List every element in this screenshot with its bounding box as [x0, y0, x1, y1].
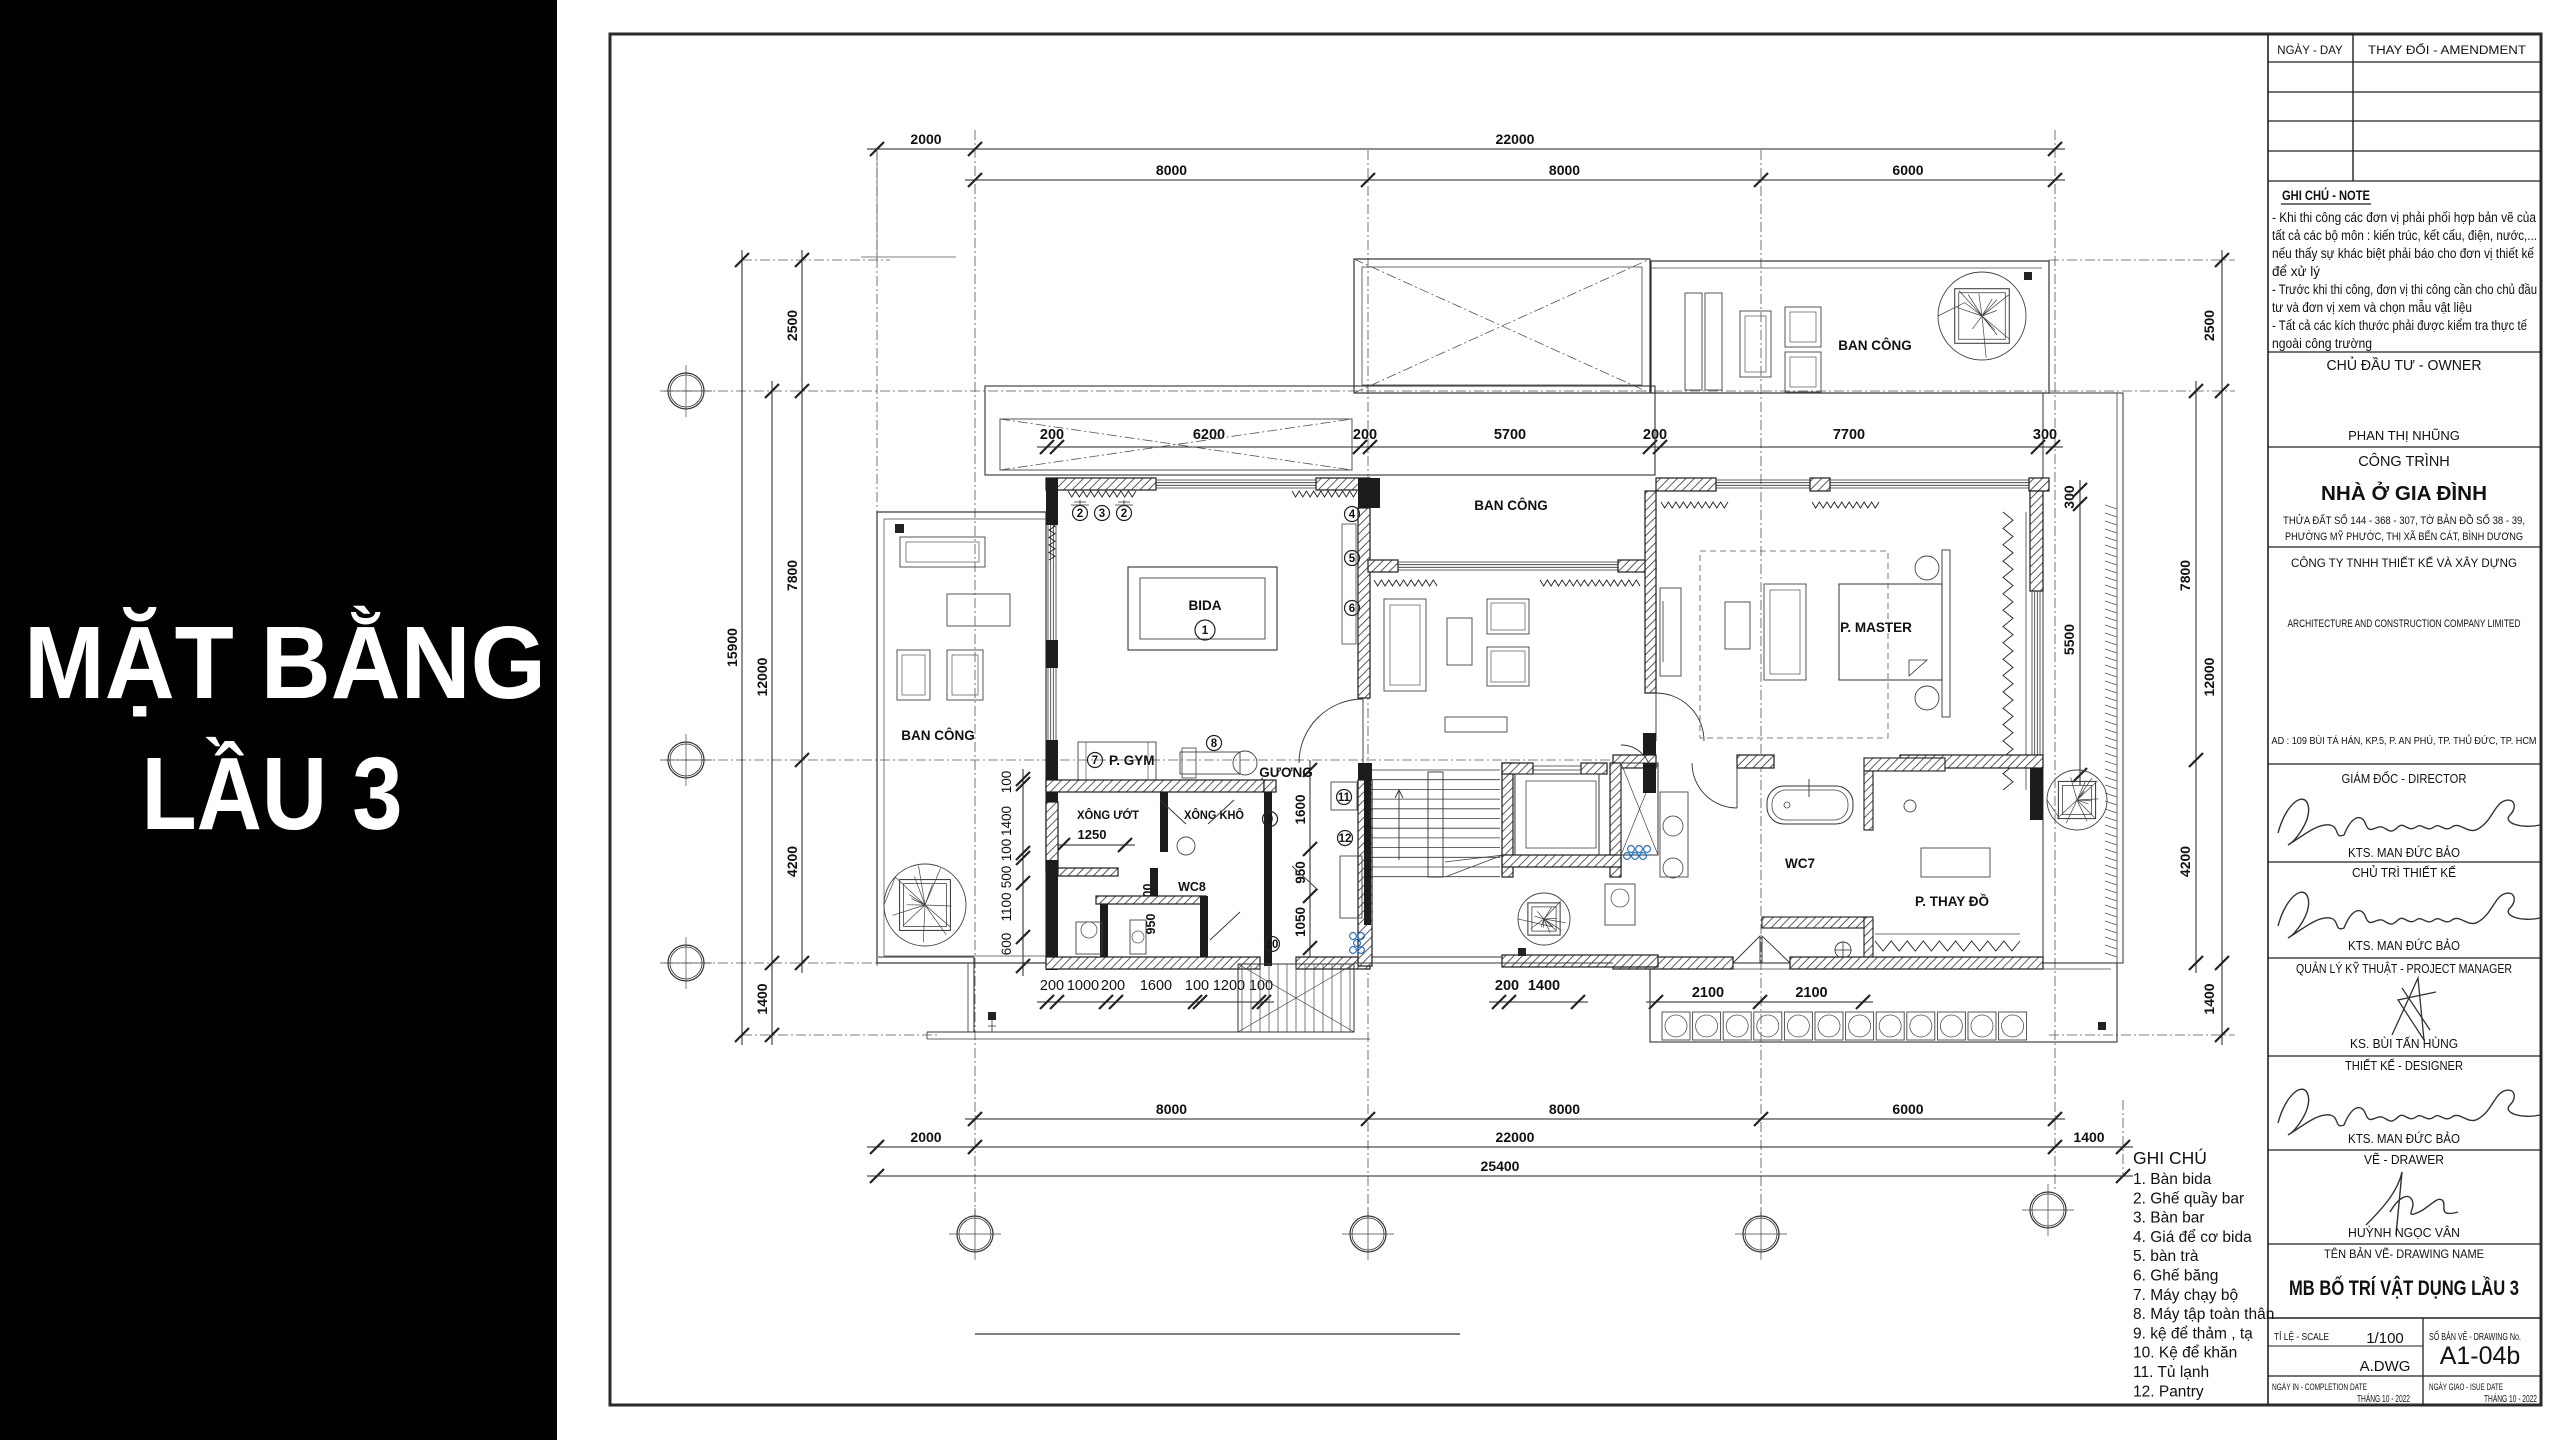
svg-text:BAN CÔNG: BAN CÔNG [1838, 338, 1912, 353]
svg-text:1/100: 1/100 [2366, 1330, 2404, 1347]
svg-text:8000: 8000 [1156, 1101, 1187, 1117]
svg-text:6: 6 [1349, 603, 1355, 615]
svg-text:15900: 15900 [724, 628, 740, 667]
svg-text:6. Ghế băng: 6. Ghế băng [2133, 1268, 2218, 1285]
svg-text:ngoài công trường: ngoài công trường [2272, 336, 2372, 351]
svg-text:100: 100 [1249, 978, 1273, 994]
svg-text:22000: 22000 [1496, 131, 1535, 147]
svg-text:VẼ - DRAWER: VẼ - DRAWER [2364, 1152, 2444, 1167]
svg-text:11. Tủ lạnh: 11. Tủ lạnh [2133, 1364, 2209, 1381]
svg-text:8000: 8000 [1549, 1101, 1580, 1117]
svg-text:5: 5 [1349, 553, 1356, 565]
svg-text:200: 200 [1040, 978, 1064, 994]
svg-text:WC8: WC8 [1178, 880, 1206, 894]
svg-text:7800: 7800 [2177, 560, 2193, 591]
svg-text:để xử lý: để xử lý [2272, 264, 2320, 279]
svg-text:A.DWG: A.DWG [2360, 1358, 2411, 1375]
svg-text:KTS. MAN ĐỨC BẢO: KTS. MAN ĐỨC BẢO [2348, 845, 2460, 860]
svg-text:8: 8 [1211, 738, 1218, 750]
svg-text:BIDA: BIDA [1189, 598, 1222, 613]
svg-text:100: 100 [1185, 978, 1209, 994]
svg-text:2500: 2500 [2201, 310, 2217, 341]
svg-text:1250: 1250 [1078, 827, 1107, 842]
svg-text:CÔNG TRÌNH: CÔNG TRÌNH [2358, 453, 2450, 470]
svg-text:200: 200 [1040, 427, 1064, 443]
svg-text:P. MASTER: P. MASTER [1840, 620, 1912, 635]
svg-text:P. GYM: P. GYM [1109, 753, 1155, 768]
svg-text:KTS. MAN ĐỨC BẢO: KTS. MAN ĐỨC BẢO [2348, 1131, 2460, 1146]
svg-text:8. Máy tập toàn thân: 8. Máy tập toàn thân [2133, 1306, 2274, 1323]
svg-text:2: 2 [1077, 508, 1083, 520]
svg-text:200: 200 [1101, 978, 1125, 994]
svg-text:MB BỐ TRÍ VẬT DỤNG LẦU 3: MB BỐ TRÍ VẬT DỤNG LẦU 3 [2289, 1276, 2519, 1300]
svg-text:NGÀY GIAO - ISUE DATE: NGÀY GIAO - ISUE DATE [2429, 1382, 2503, 1393]
svg-text:8000: 8000 [1549, 162, 1580, 178]
svg-text:GHI CHÚ - NOTE: GHI CHÚ - NOTE [2282, 186, 2370, 203]
svg-text:1400: 1400 [1528, 978, 1560, 994]
svg-text:PHƯỜNG MỸ PHƯỚC, THỊ XÃ BẾN CÁ: PHƯỜNG MỸ PHƯỚC, THỊ XÃ BẾN CÁT, BÌNH DƯ… [2285, 530, 2523, 543]
svg-text:300: 300 [2033, 427, 2057, 443]
svg-text:1400: 1400 [2201, 983, 2217, 1014]
svg-text:2000: 2000 [910, 1129, 941, 1145]
svg-text:9. kệ để thảm , tạ: 9. kệ để thảm , tạ [2133, 1325, 2253, 1342]
svg-text:AD : 109 BÙI TÁ HÁN, KP.5, P.: AD : 109 BÙI TÁ HÁN, KP.5, P. AN PHÚ, TP… [2272, 734, 2537, 747]
svg-text:KTS. MAN ĐỨC BẢO: KTS. MAN ĐỨC BẢO [2348, 938, 2460, 953]
svg-text:HUỲNH NGỌC VÂN: HUỲNH NGỌC VÂN [2348, 1225, 2460, 1240]
svg-text:4: 4 [1349, 509, 1356, 521]
svg-text:2. Ghế quầy bar: 2. Ghế quầy bar [2133, 1190, 2244, 1207]
svg-text:NGÀY IN - COMPLETION DATE: NGÀY IN - COMPLETION DATE [2272, 1382, 2367, 1393]
svg-text:4200: 4200 [2177, 846, 2193, 877]
svg-text:CÔNG TY TNHH THIẾT KẾ VÀ XÂY D: CÔNG TY TNHH THIẾT KẾ VÀ XÂY DỰNG [2291, 555, 2517, 570]
svg-text:QUẢN LÝ KỸ THUẬT - PROJECT MAN: QUẢN LÝ KỸ THUẬT - PROJECT MANAGER [2296, 961, 2512, 976]
svg-text:THÁNG 10 - 2022: THÁNG 10 - 2022 [2484, 1392, 2537, 1405]
svg-text:5700: 5700 [1494, 427, 1526, 443]
svg-text:PHAN THỊ NHŨNG: PHAN THỊ NHŨNG [2348, 428, 2460, 443]
svg-text:GHI CHÚ: GHI CHÚ [2133, 1147, 2207, 1168]
svg-text:1000: 1000 [1067, 978, 1099, 994]
svg-text:950: 950 [1293, 861, 1308, 884]
svg-text:2500: 2500 [784, 310, 800, 341]
svg-text:7700: 7700 [1833, 427, 1865, 443]
svg-text:1050: 1050 [1293, 907, 1308, 937]
svg-text:22000: 22000 [1496, 1129, 1535, 1145]
svg-text:- Khi thi công các đơn vị phải: - Khi thi công các đơn vị phải phối hợp … [2272, 210, 2536, 225]
svg-text:9: 9 [1267, 814, 1273, 826]
svg-text:2100: 2100 [1692, 985, 1724, 1001]
svg-text:200: 200 [1353, 427, 1377, 443]
svg-text:2: 2 [1121, 508, 1127, 520]
svg-text:6000: 6000 [1892, 1101, 1923, 1117]
svg-text:300: 300 [2061, 485, 2077, 509]
svg-text:6200: 6200 [1193, 427, 1225, 443]
svg-text:11: 11 [1338, 792, 1351, 804]
svg-text:100: 100 [999, 771, 1014, 794]
svg-text:7800: 7800 [784, 560, 800, 591]
svg-text:1400: 1400 [999, 806, 1014, 836]
svg-text:12000: 12000 [2201, 657, 2217, 696]
svg-text:7: 7 [1092, 755, 1098, 767]
svg-text:10: 10 [1266, 939, 1279, 951]
svg-text:1400: 1400 [2073, 1129, 2104, 1145]
svg-text:tư và đơn vị xem và chọn mẫu v: tư và đơn vị xem và chọn mẫu vật liệu [2272, 300, 2472, 315]
svg-text:10. Kệ để khăn: 10. Kệ để khăn [2133, 1345, 2237, 1362]
svg-text:1400: 1400 [754, 983, 770, 1014]
svg-text:600: 600 [999, 933, 1014, 956]
svg-text:1: 1 [1202, 625, 1209, 637]
svg-text:1200: 1200 [1213, 978, 1245, 994]
svg-text:2100: 2100 [1795, 985, 1827, 1001]
svg-text:CHỦ ĐẦU TƯ - OWNER: CHỦ ĐẦU TƯ - OWNER [2327, 356, 2482, 374]
svg-text:SỐ BẢN VẼ - DRAWING No.: SỐ BẢN VẼ - DRAWING No. [2429, 1329, 2521, 1343]
svg-text:4. Giá để cơ bida: 4. Giá để cơ bida [2133, 1229, 2252, 1246]
svg-text:3: 3 [1099, 508, 1105, 520]
svg-text:ARCHITECTURE AND CONSTRUCTION: ARCHITECTURE AND CONSTRUCTION COMPANY LI… [2288, 618, 2521, 630]
svg-text:GƯƠNG: GƯƠNG [1259, 765, 1312, 780]
svg-text:NGÀY - DAY: NGÀY - DAY [2277, 44, 2343, 57]
svg-text:GIÁM ĐỐC - DIRECTOR: GIÁM ĐỐC - DIRECTOR [2342, 771, 2467, 786]
svg-text:12. Pantry: 12. Pantry [2133, 1383, 2204, 1400]
svg-text:nếu thấy sự khác biệt phải bá: nếu thấy sự khác biệt phải báo cho đơn v… [2272, 246, 2534, 261]
svg-text:CHỦ TRÌ THIẾT KẾ: CHỦ TRÌ THIẾT KẾ [2352, 865, 2456, 880]
svg-text:tất cả các bộ môn : kiến trúc,: tất cả các bộ môn : kiến trúc, kết cấu, … [2272, 228, 2537, 243]
svg-text:THAY ĐỔI - AMENDMENT: THAY ĐỔI - AMENDMENT [2368, 44, 2526, 57]
svg-text:4200: 4200 [784, 846, 800, 877]
svg-text:25400: 25400 [1481, 1158, 1520, 1174]
svg-text:1600: 1600 [1140, 978, 1172, 994]
svg-text:NHÀ Ở GIA ĐÌNH: NHÀ Ở GIA ĐÌNH [2321, 481, 2487, 505]
svg-text:12000: 12000 [754, 657, 770, 696]
svg-text:3. Bàn bar: 3. Bàn bar [2133, 1210, 2205, 1227]
svg-text:LẦU 3: LẦU 3 [142, 736, 403, 851]
svg-text:6000: 6000 [1892, 162, 1923, 178]
svg-text:1100: 1100 [999, 892, 1014, 921]
svg-text:1600: 1600 [1293, 794, 1308, 824]
svg-text:- Tất cả các kích thước phải đ: - Tất cả các kích thước phải được kiểm t… [2272, 318, 2527, 333]
svg-text:5500: 5500 [2061, 624, 2077, 655]
svg-text:TÊN BẢN VẼ- DRAWING NAME: TÊN BẢN VẼ- DRAWING NAME [2324, 1246, 2484, 1261]
svg-text:5. bàn trà: 5. bàn trà [2133, 1248, 2199, 1265]
svg-text:- Trước khi thi công, đơn vị t: - Trước khi thi công, đơn vị thi công cầ… [2272, 282, 2537, 297]
svg-text:THỬA ĐẤT SỐ 144 - 368 - 307, T: THỬA ĐẤT SỐ 144 - 368 - 307, TỜ BẢN ĐỒ S… [2283, 513, 2525, 527]
svg-text:1. Bàn bida: 1. Bàn bida [2133, 1171, 2212, 1188]
svg-text:THÁNG 10 - 2022: THÁNG 10 - 2022 [2357, 1392, 2410, 1405]
svg-text:BAN CÔNG: BAN CÔNG [901, 728, 975, 743]
svg-text:8000: 8000 [1156, 162, 1187, 178]
svg-text:BAN CÔNG: BAN CÔNG [1474, 498, 1548, 513]
svg-text:MẶT BẰNG: MẶT BẰNG [24, 605, 546, 720]
svg-text:100: 100 [999, 839, 1014, 862]
svg-text:7. Máy chạy bộ: 7. Máy chạy bộ [2133, 1287, 2238, 1304]
svg-text:12: 12 [1339, 833, 1352, 845]
svg-text:P. THAY ĐỒ: P. THAY ĐỒ [1915, 894, 1989, 909]
svg-text:2000: 2000 [910, 131, 941, 147]
svg-text:KS. BÙI TẤN HÙNG: KS. BÙI TẤN HÙNG [2350, 1036, 2458, 1051]
svg-text:500: 500 [999, 866, 1014, 889]
svg-text:TỈ LỆ - SCALE: TỈ LỆ - SCALE [2274, 1330, 2329, 1343]
svg-text:A1-04b: A1-04b [2440, 1342, 2521, 1370]
svg-text:XÔNG ƯỚT: XÔNG ƯỚT [1077, 807, 1140, 822]
svg-text:WC7: WC7 [1785, 856, 1815, 871]
svg-text:THIẾT KẾ - DESIGNER: THIẾT KẾ - DESIGNER [2345, 1058, 2463, 1073]
svg-text:XÔNG KHÔ: XÔNG KHÔ [1184, 807, 1244, 822]
svg-text:200: 200 [1495, 978, 1519, 994]
